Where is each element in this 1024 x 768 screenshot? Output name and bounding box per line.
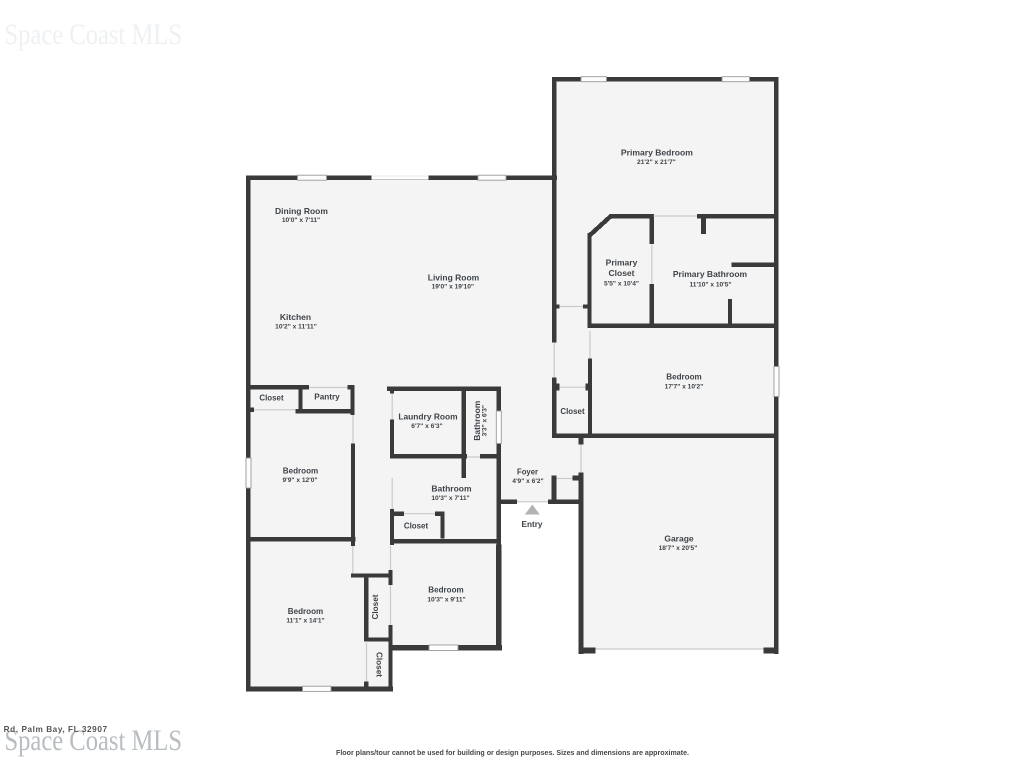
svg-text:Floor plans/tour cannot be use: Floor plans/tour cannot be used for buil…	[336, 748, 689, 757]
svg-text:Closet: Closet	[259, 393, 283, 402]
svg-text:Closet: Closet	[560, 407, 584, 416]
svg-text:Bedroom: Bedroom	[666, 372, 702, 382]
svg-text:Entry: Entry	[522, 520, 543, 529]
svg-text:Laundry Room: Laundry Room	[398, 412, 458, 422]
svg-text:10'3" x 9'11": 10'3" x 9'11"	[427, 597, 465, 604]
svg-text:ƒ Space Coast MLS: ƒ Space Coast MLS	[0, 18, 182, 51]
svg-text:4'9" x 6'2": 4'9" x 6'2"	[512, 478, 543, 485]
svg-text:Garage: Garage	[664, 534, 694, 544]
svg-text:19'0" x 19'10": 19'0" x 19'10"	[432, 283, 474, 290]
svg-text:10'2" x 11'11": 10'2" x 11'11"	[275, 323, 317, 330]
svg-text:Kitchen: Kitchen	[280, 312, 311, 322]
svg-text:Bedroom: Bedroom	[283, 466, 319, 476]
svg-text:18'7" x 20'5": 18'7" x 20'5"	[659, 545, 698, 552]
svg-text:Foyer: Foyer	[517, 468, 539, 477]
svg-text:Dining Room: Dining Room	[275, 206, 328, 216]
svg-text:Bedroom: Bedroom	[288, 606, 324, 616]
svg-text:9'9" x 12'0": 9'9" x 12'0"	[282, 477, 317, 484]
svg-text:Closet: Closet	[609, 268, 635, 278]
svg-text:10'0" x 7'11": 10'0" x 7'11"	[282, 217, 320, 224]
svg-text:Pantry: Pantry	[314, 393, 340, 402]
svg-text:Closet: Closet	[371, 594, 380, 619]
svg-text:Living Room: Living Room	[428, 273, 480, 283]
svg-text:Bathroom: Bathroom	[431, 484, 472, 494]
svg-text:17'7" x 10'2": 17'7" x 10'2"	[665, 384, 704, 391]
svg-text:11'10" x 10'5": 11'10" x 10'5"	[689, 281, 731, 288]
svg-text:Primary: Primary	[606, 258, 638, 268]
svg-text:6'7" x 6'3": 6'7" x 6'3"	[411, 423, 442, 430]
svg-text:21'2" x 21'7": 21'2" x 21'7"	[637, 159, 676, 166]
svg-text:Closet: Closet	[404, 522, 428, 531]
svg-text:3'3" x 6'3": 3'3" x 6'3"	[482, 405, 489, 436]
svg-text:11'1" x 14'1": 11'1" x 14'1"	[286, 618, 324, 625]
svg-text:Primary Bathroom: Primary Bathroom	[673, 269, 748, 279]
svg-text:10'3" x 7'11": 10'3" x 7'11"	[431, 495, 469, 502]
svg-text:5'5" x 10'4": 5'5" x 10'4"	[604, 280, 639, 287]
svg-text:Closet: Closet	[374, 652, 383, 677]
svg-text:Primary Bedroom: Primary Bedroom	[621, 148, 693, 158]
svg-text:Bathroom: Bathroom	[472, 400, 482, 441]
svg-text:t Rd, Palm Bay, FL 32907: t Rd, Palm Bay, FL 32907	[0, 725, 108, 734]
svg-text:Bedroom: Bedroom	[428, 585, 464, 595]
